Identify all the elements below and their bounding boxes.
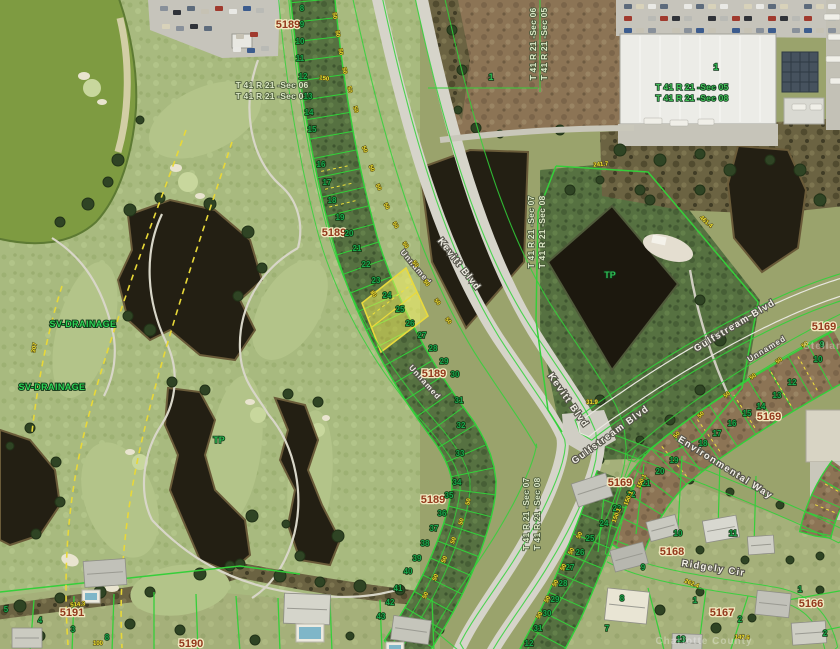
car bbox=[648, 16, 656, 21]
truck bbox=[698, 119, 714, 125]
dimension-label: 31.9 bbox=[586, 400, 598, 406]
car bbox=[816, 4, 824, 9]
lot-number: 40 bbox=[404, 567, 413, 576]
lot-number: 17 bbox=[323, 178, 332, 187]
lot-number: 39 bbox=[413, 554, 422, 563]
section-label: T 41 R 21 -Sec 05 bbox=[539, 8, 549, 81]
lot-number: 11 bbox=[296, 54, 305, 63]
lot-number: 37 bbox=[430, 524, 439, 533]
car bbox=[648, 28, 656, 33]
car bbox=[247, 48, 255, 53]
lot-number: 8 bbox=[105, 633, 110, 642]
car bbox=[261, 46, 269, 51]
block-label-5168: 5168 bbox=[660, 546, 684, 558]
lot-number-selected: 25 bbox=[396, 305, 405, 314]
car bbox=[768, 16, 776, 21]
lot-number: 26 bbox=[576, 548, 585, 557]
car bbox=[684, 16, 692, 21]
car bbox=[624, 4, 632, 9]
car bbox=[828, 4, 836, 9]
lot-number: 42 bbox=[386, 598, 395, 607]
car bbox=[176, 26, 184, 31]
lot-number: 2 bbox=[738, 615, 743, 624]
lot-number: 21 bbox=[353, 244, 362, 253]
lot-number: 28 bbox=[429, 344, 438, 353]
block-label-5189: 5189 bbox=[422, 368, 446, 380]
lot-number: 36 bbox=[438, 509, 447, 518]
section-label: T 41 R 21 -Sec 06 bbox=[236, 80, 309, 90]
lot-number: 20 bbox=[345, 229, 354, 238]
car bbox=[828, 28, 836, 33]
lot-number: 18 bbox=[699, 439, 708, 448]
lot-number-selected: 24 bbox=[383, 291, 392, 300]
lot-number: 16 bbox=[317, 160, 326, 169]
lot-number: 26 bbox=[406, 319, 415, 328]
drainage-label: SV-DRAINAGE bbox=[50, 319, 117, 329]
car bbox=[162, 24, 170, 29]
lot-number: 12 bbox=[788, 378, 797, 387]
block-label-5189: 5189 bbox=[322, 227, 346, 239]
lot-number: 20 bbox=[656, 467, 665, 476]
lot-number: 15 bbox=[308, 125, 317, 134]
car bbox=[233, 47, 241, 52]
truck bbox=[810, 104, 822, 110]
car bbox=[804, 4, 812, 9]
car bbox=[696, 4, 704, 9]
house-roof bbox=[83, 559, 127, 588]
car bbox=[804, 16, 812, 21]
car bbox=[756, 4, 764, 9]
lot-number: 31 bbox=[534, 624, 543, 633]
lot-number: 5 bbox=[4, 605, 9, 614]
block-label-5189: 5189 bbox=[421, 494, 445, 506]
lot-number: 22 bbox=[362, 260, 371, 269]
car bbox=[768, 28, 776, 33]
house-roof bbox=[604, 588, 649, 624]
lot-number: 10 bbox=[674, 529, 683, 538]
lot-number: 31 bbox=[455, 396, 464, 405]
lot-number: 14 bbox=[305, 108, 314, 117]
lot-number: 23 bbox=[372, 276, 381, 285]
map-canvas: T 41 R 21 -Sec 06T 41 R 21 -Sec 07T 41 R… bbox=[0, 0, 840, 649]
white-building-right-edge bbox=[806, 410, 840, 462]
car bbox=[672, 16, 680, 21]
car bbox=[684, 28, 692, 33]
truck bbox=[830, 78, 840, 84]
lot-number: 4 bbox=[38, 616, 43, 625]
car bbox=[744, 16, 752, 21]
car bbox=[160, 6, 168, 11]
car bbox=[624, 28, 632, 33]
car bbox=[696, 28, 704, 33]
section-label: T 41 R 21 -Sec 07 bbox=[521, 478, 531, 551]
car bbox=[636, 4, 644, 9]
house-roof bbox=[747, 535, 774, 555]
section-label: T 41 R 21 -Sec 08 bbox=[537, 196, 547, 269]
lot-number: 29 bbox=[551, 595, 560, 604]
truck bbox=[670, 120, 688, 126]
car bbox=[187, 6, 195, 11]
car bbox=[816, 28, 824, 33]
car bbox=[648, 4, 656, 9]
car bbox=[624, 16, 632, 21]
lot-number: 27 bbox=[418, 331, 427, 340]
house-roof bbox=[12, 628, 42, 648]
lot-number: 16 bbox=[728, 419, 737, 428]
lot-number: 1 bbox=[713, 62, 718, 72]
large-building bbox=[620, 34, 776, 124]
lot-number: 10 bbox=[814, 355, 823, 364]
car bbox=[204, 26, 212, 31]
lot-number: 34 bbox=[453, 478, 462, 487]
section-label: T 41 R 21 -Sec 08 bbox=[656, 93, 729, 103]
car bbox=[201, 9, 209, 14]
lot-number: 12 bbox=[525, 639, 534, 648]
car bbox=[792, 16, 800, 21]
car bbox=[215, 6, 223, 11]
block-label-5167: 5167 bbox=[710, 607, 734, 619]
car bbox=[780, 16, 788, 21]
car bbox=[744, 28, 752, 33]
lot-number: 33 bbox=[456, 449, 465, 458]
car bbox=[672, 28, 680, 33]
lot-number: 3 bbox=[71, 625, 76, 634]
car bbox=[732, 28, 740, 33]
block-label-5191: 5191 bbox=[60, 607, 84, 619]
lot-number: 13 bbox=[773, 391, 782, 400]
truck bbox=[828, 34, 840, 40]
lot-number: 1 bbox=[488, 72, 493, 82]
car bbox=[792, 28, 800, 33]
lot-number: 30 bbox=[543, 609, 552, 618]
lot-number: 17 bbox=[713, 429, 722, 438]
section-label: T 41 R 21 -Sec 06 bbox=[528, 8, 538, 81]
truck bbox=[644, 118, 662, 124]
lot-number: 8 bbox=[300, 4, 305, 13]
car bbox=[732, 16, 740, 21]
lot-number: 10 bbox=[296, 37, 305, 46]
car bbox=[173, 10, 181, 15]
car bbox=[190, 24, 198, 29]
house-roof bbox=[791, 621, 826, 645]
lot-number: 41 bbox=[394, 584, 403, 593]
car bbox=[780, 4, 788, 9]
house-roof bbox=[391, 615, 432, 644]
car bbox=[250, 32, 258, 37]
lot-number: 19 bbox=[670, 456, 679, 465]
car bbox=[756, 28, 764, 33]
truck bbox=[792, 104, 806, 110]
car bbox=[708, 28, 716, 33]
car bbox=[720, 4, 728, 9]
lot-number: 28 bbox=[559, 579, 568, 588]
car bbox=[804, 28, 812, 33]
lot-number: 9 bbox=[300, 20, 305, 29]
lot-number: 18 bbox=[328, 196, 337, 205]
aerial-parcel-map: T 41 R 21 -Sec 06T 41 R 21 -Sec 07T 41 R… bbox=[0, 0, 840, 649]
car bbox=[229, 9, 237, 14]
drainage-label: SV-DRAINAGE bbox=[19, 382, 86, 392]
car bbox=[708, 4, 716, 9]
block-label-5189: 5189 bbox=[276, 19, 300, 31]
car bbox=[744, 4, 752, 9]
section-label: T 41 R 21 -Sec 05 bbox=[656, 82, 729, 92]
lot-number: 1 bbox=[798, 585, 803, 594]
car bbox=[660, 4, 668, 9]
lot-number: 35 bbox=[445, 491, 454, 500]
house-roof bbox=[755, 590, 791, 617]
car bbox=[243, 6, 251, 11]
parcel-code-label: TP bbox=[604, 270, 616, 280]
lot-number: 38 bbox=[421, 539, 430, 548]
lot-number: 30 bbox=[451, 370, 460, 379]
lot-number: 9 bbox=[641, 563, 646, 572]
block-label-5190: 5190 bbox=[179, 638, 203, 649]
watermark: Stellar MLS bbox=[803, 341, 840, 352]
section-label: T 41 R 21 -Sec 08 bbox=[532, 478, 542, 551]
lot-number: 14 bbox=[757, 402, 766, 411]
lot-number: 32 bbox=[457, 421, 466, 430]
section-label: T 41 R 21 -Sec 07 bbox=[236, 91, 309, 101]
lot-number: 11 bbox=[729, 529, 738, 538]
block-label-5169: 5169 bbox=[757, 411, 781, 423]
block-label-5169: 5169 bbox=[812, 321, 836, 333]
car bbox=[708, 16, 716, 21]
car bbox=[256, 8, 264, 13]
lot-number: 7 bbox=[605, 624, 610, 633]
lot-number: 12 bbox=[299, 72, 308, 81]
lot-number: 24 bbox=[600, 519, 609, 528]
lot-number: 8 bbox=[620, 594, 625, 603]
truck bbox=[824, 14, 840, 20]
watermark: Charlotte County bbox=[655, 636, 752, 647]
lot-number: 19 bbox=[336, 213, 345, 222]
car bbox=[660, 16, 668, 21]
house-roof bbox=[283, 593, 330, 625]
dimension-label: 100 bbox=[93, 641, 104, 647]
block-label-5169: 5169 bbox=[608, 477, 632, 489]
lot-number: 2 bbox=[823, 629, 828, 638]
parcel-code-label: TP bbox=[213, 435, 225, 445]
lot-number: 43 bbox=[377, 612, 386, 621]
car bbox=[684, 4, 692, 9]
block-label-5166: 5166 bbox=[799, 598, 823, 610]
truck bbox=[826, 56, 840, 62]
lot-number: 25 bbox=[586, 534, 595, 543]
car bbox=[768, 4, 776, 9]
lot-number: 15 bbox=[743, 409, 752, 418]
car bbox=[720, 16, 728, 21]
car bbox=[236, 34, 244, 39]
lot-number: 29 bbox=[440, 357, 449, 366]
car bbox=[636, 28, 644, 33]
section-label: T 41 R 21 -Sec 07 bbox=[526, 196, 536, 269]
lot-number: 1 bbox=[693, 596, 698, 605]
lot-number: 13 bbox=[304, 92, 313, 101]
